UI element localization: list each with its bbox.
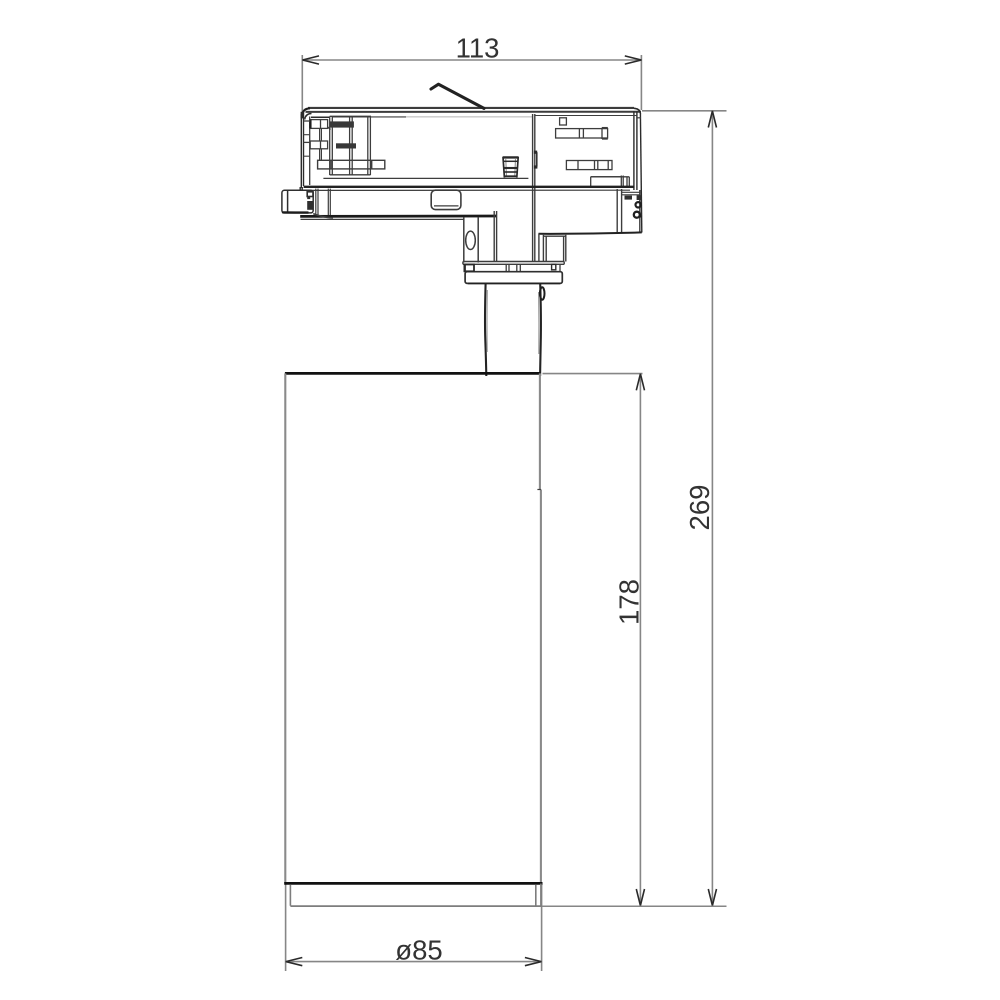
svg-text:269: 269 [684, 485, 715, 531]
svg-text:113: 113 [456, 33, 500, 64]
svg-text:ø85: ø85 [395, 935, 442, 966]
svg-text:178: 178 [614, 579, 645, 625]
